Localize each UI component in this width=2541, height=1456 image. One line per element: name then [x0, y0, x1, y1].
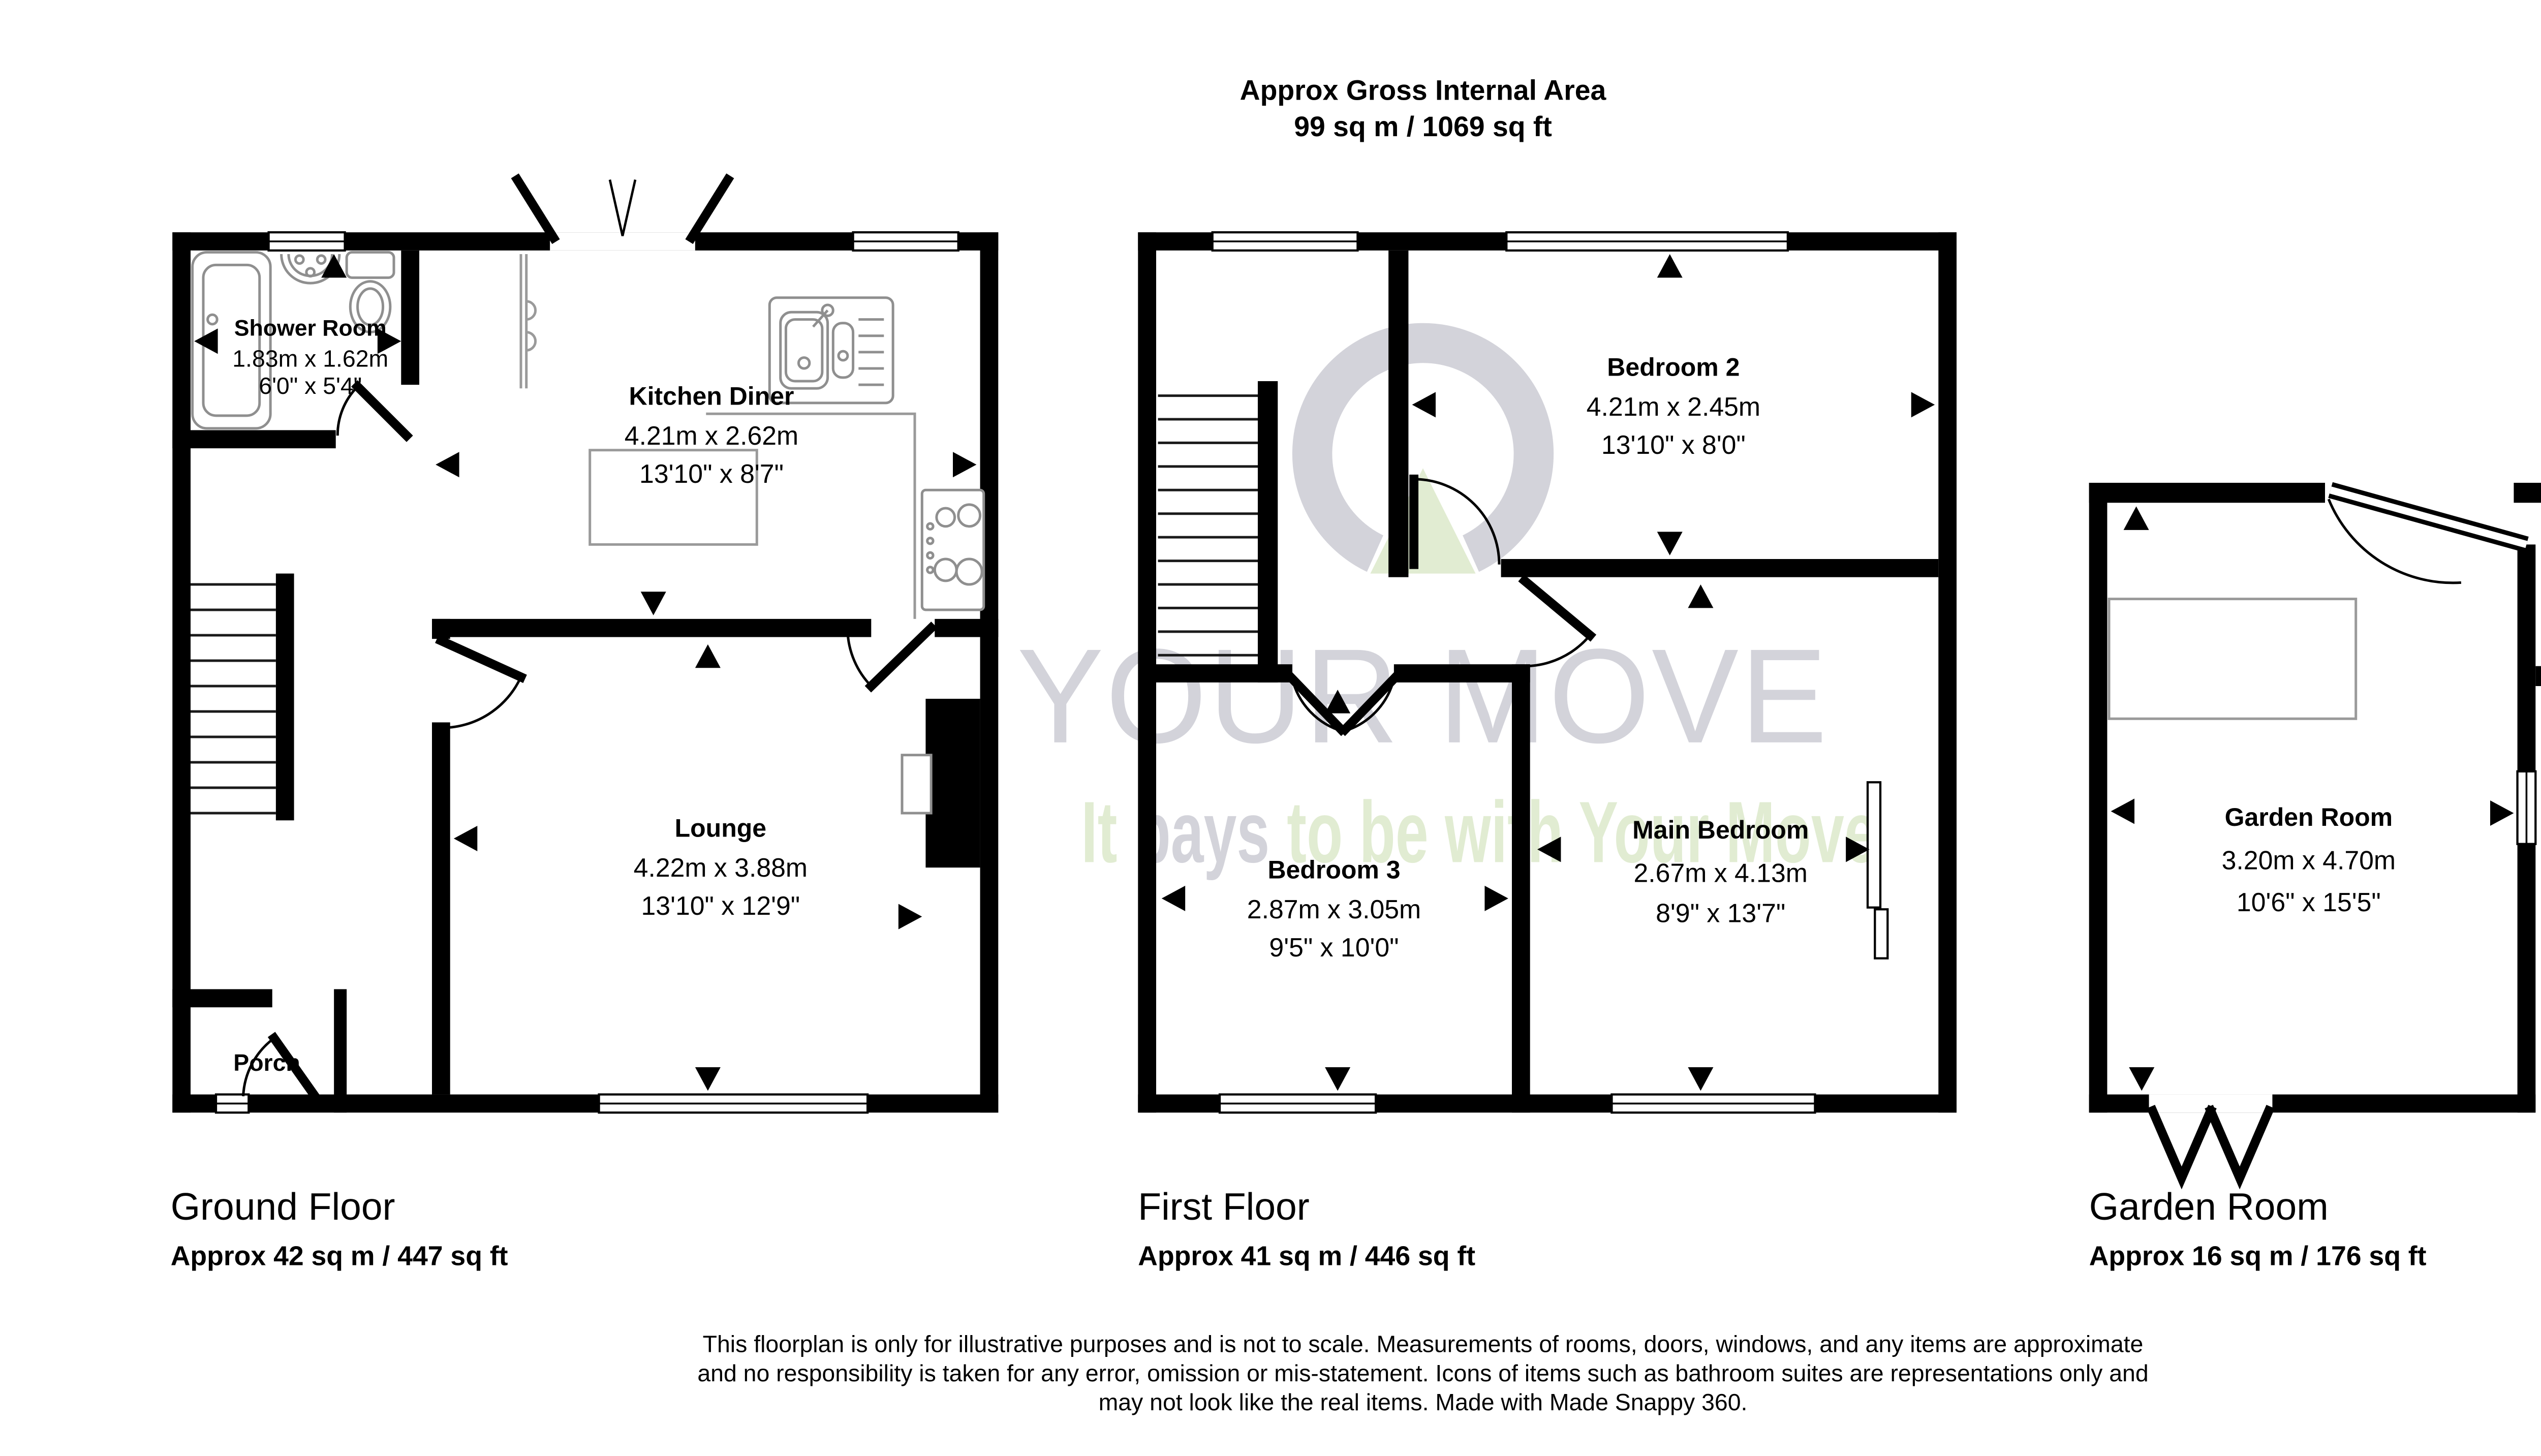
room-dims: 4.21m x 2.45m	[1587, 392, 1760, 421]
wall-shower-right	[401, 251, 419, 385]
wall-porch-right	[334, 989, 347, 1112]
room-label: Porch	[233, 1049, 300, 1076]
page-title-line2: 99 sq m / 1069 sq ft	[1294, 111, 1552, 142]
wall-landing	[1394, 664, 1530, 683]
floor-area: Approx 42 sq m / 447 sq ft	[171, 1241, 508, 1271]
disclaimer-line: and no responsibility is taken for any e…	[697, 1360, 2148, 1386]
floor-area: Approx 16 sq m / 176 sq ft	[2089, 1241, 2427, 1271]
wall-bedroom2-bottom	[1501, 559, 1939, 577]
room-dims: 4.21m x 2.62m	[625, 421, 798, 450]
page-title-line1: Approx Gross Internal Area	[1240, 74, 1607, 106]
wall-porch-top	[172, 989, 272, 1007]
wall-bedroom2-left	[1388, 251, 1408, 577]
fireplace-icon	[925, 699, 980, 868]
floor-title: First Floor	[1138, 1185, 1309, 1228]
floorplan-page: YOUR MOVE Itpaysto be with Your Move App…	[0, 0, 2541, 1456]
wall-kitchen-lounge	[432, 619, 871, 637]
garden-room-plan: Garden Room 3.20m x 4.70m 10'6" x 15'5" …	[2089, 483, 2541, 1178]
wall-kitchen-lounge	[935, 619, 998, 637]
wall	[2089, 483, 2325, 503]
hob-icon	[922, 490, 983, 610]
disclaimer: This floorplan is only for illustrative …	[697, 1331, 2148, 1415]
hearth-icon	[902, 755, 931, 813]
room-dims: 3.20m x 4.70m	[2222, 846, 2396, 875]
floor-area: Approx 41 sq m / 446 sq ft	[1138, 1241, 1475, 1271]
wall-shower-bottom	[172, 430, 335, 448]
room-label: Lounge	[675, 814, 766, 842]
room-label: Shower Room	[234, 316, 387, 341]
room-dims: 8'9" x 13'7"	[1656, 898, 1785, 927]
structure-outline	[2109, 599, 2356, 719]
ground-floor-plan: Shower Room 1.83m x 1.62m 6'0" x 5'4" Ki…	[172, 180, 998, 1113]
french-door-icon	[2149, 1095, 2273, 1178]
room-dims: 9'5" x 10'0"	[1269, 933, 1399, 962]
wall	[1938, 232, 1957, 1112]
room-label: Bedroom 3	[1267, 856, 1400, 884]
door-arc-icon	[2329, 490, 2526, 583]
wall	[2089, 483, 2108, 1112]
room-dims: 6'0" x 5'4"	[259, 373, 362, 399]
room-label: Main Bedroom	[1632, 816, 1809, 844]
wall	[980, 232, 999, 1112]
first-floor-plan: Bedroom 2 4.21m x 2.45m 13'10" x 8'0" Be…	[1138, 232, 1957, 1112]
wall	[2535, 666, 2541, 686]
wall	[172, 232, 191, 1112]
room-dims: 13'10" x 8'0"	[1601, 430, 1746, 459]
floorplan-canvas: Approx Gross Internal Area 99 sq m / 106…	[0, 0, 2541, 1456]
wall-bed3-main	[1512, 664, 1530, 1112]
floor-title: Ground Floor	[171, 1185, 395, 1228]
room-dims: 2.67m x 4.13m	[1634, 858, 1808, 888]
disclaimer-line: This floorplan is only for illustrative …	[703, 1331, 2144, 1357]
room-dims: 13'10" x 12'9"	[641, 891, 800, 920]
room-dims: 1.83m x 1.62m	[232, 345, 388, 371]
logo-triangle-icon	[1370, 468, 1475, 573]
stairs-icon	[191, 574, 294, 821]
room-dims: 10'6" x 15'5"	[2237, 887, 2381, 917]
room-dims: 13'10" x 8'7"	[639, 459, 784, 488]
measure-arrow-icon	[2111, 506, 2514, 1091]
room-dims: 4.22m x 3.88m	[634, 853, 808, 882]
window-icon	[1213, 232, 1888, 1112]
wall-lounge-left	[432, 722, 450, 1094]
floor-captions: Ground Floor Approx 42 sq m / 447 sq ft …	[171, 1185, 2427, 1271]
room-label: Kitchen Diner	[629, 382, 794, 410]
disclaimer-line: may not look like the real items. Made w…	[1099, 1389, 1748, 1415]
floor-title: Garden Room	[2089, 1185, 2329, 1228]
wall	[2514, 483, 2541, 503]
room-label: Garden Room	[2225, 803, 2393, 831]
room-label: Bedroom 2	[1607, 353, 1740, 381]
wall	[172, 1095, 998, 1113]
room-dims: 2.87m x 3.05m	[1247, 894, 1421, 924]
stairs-icon	[1158, 381, 1278, 683]
